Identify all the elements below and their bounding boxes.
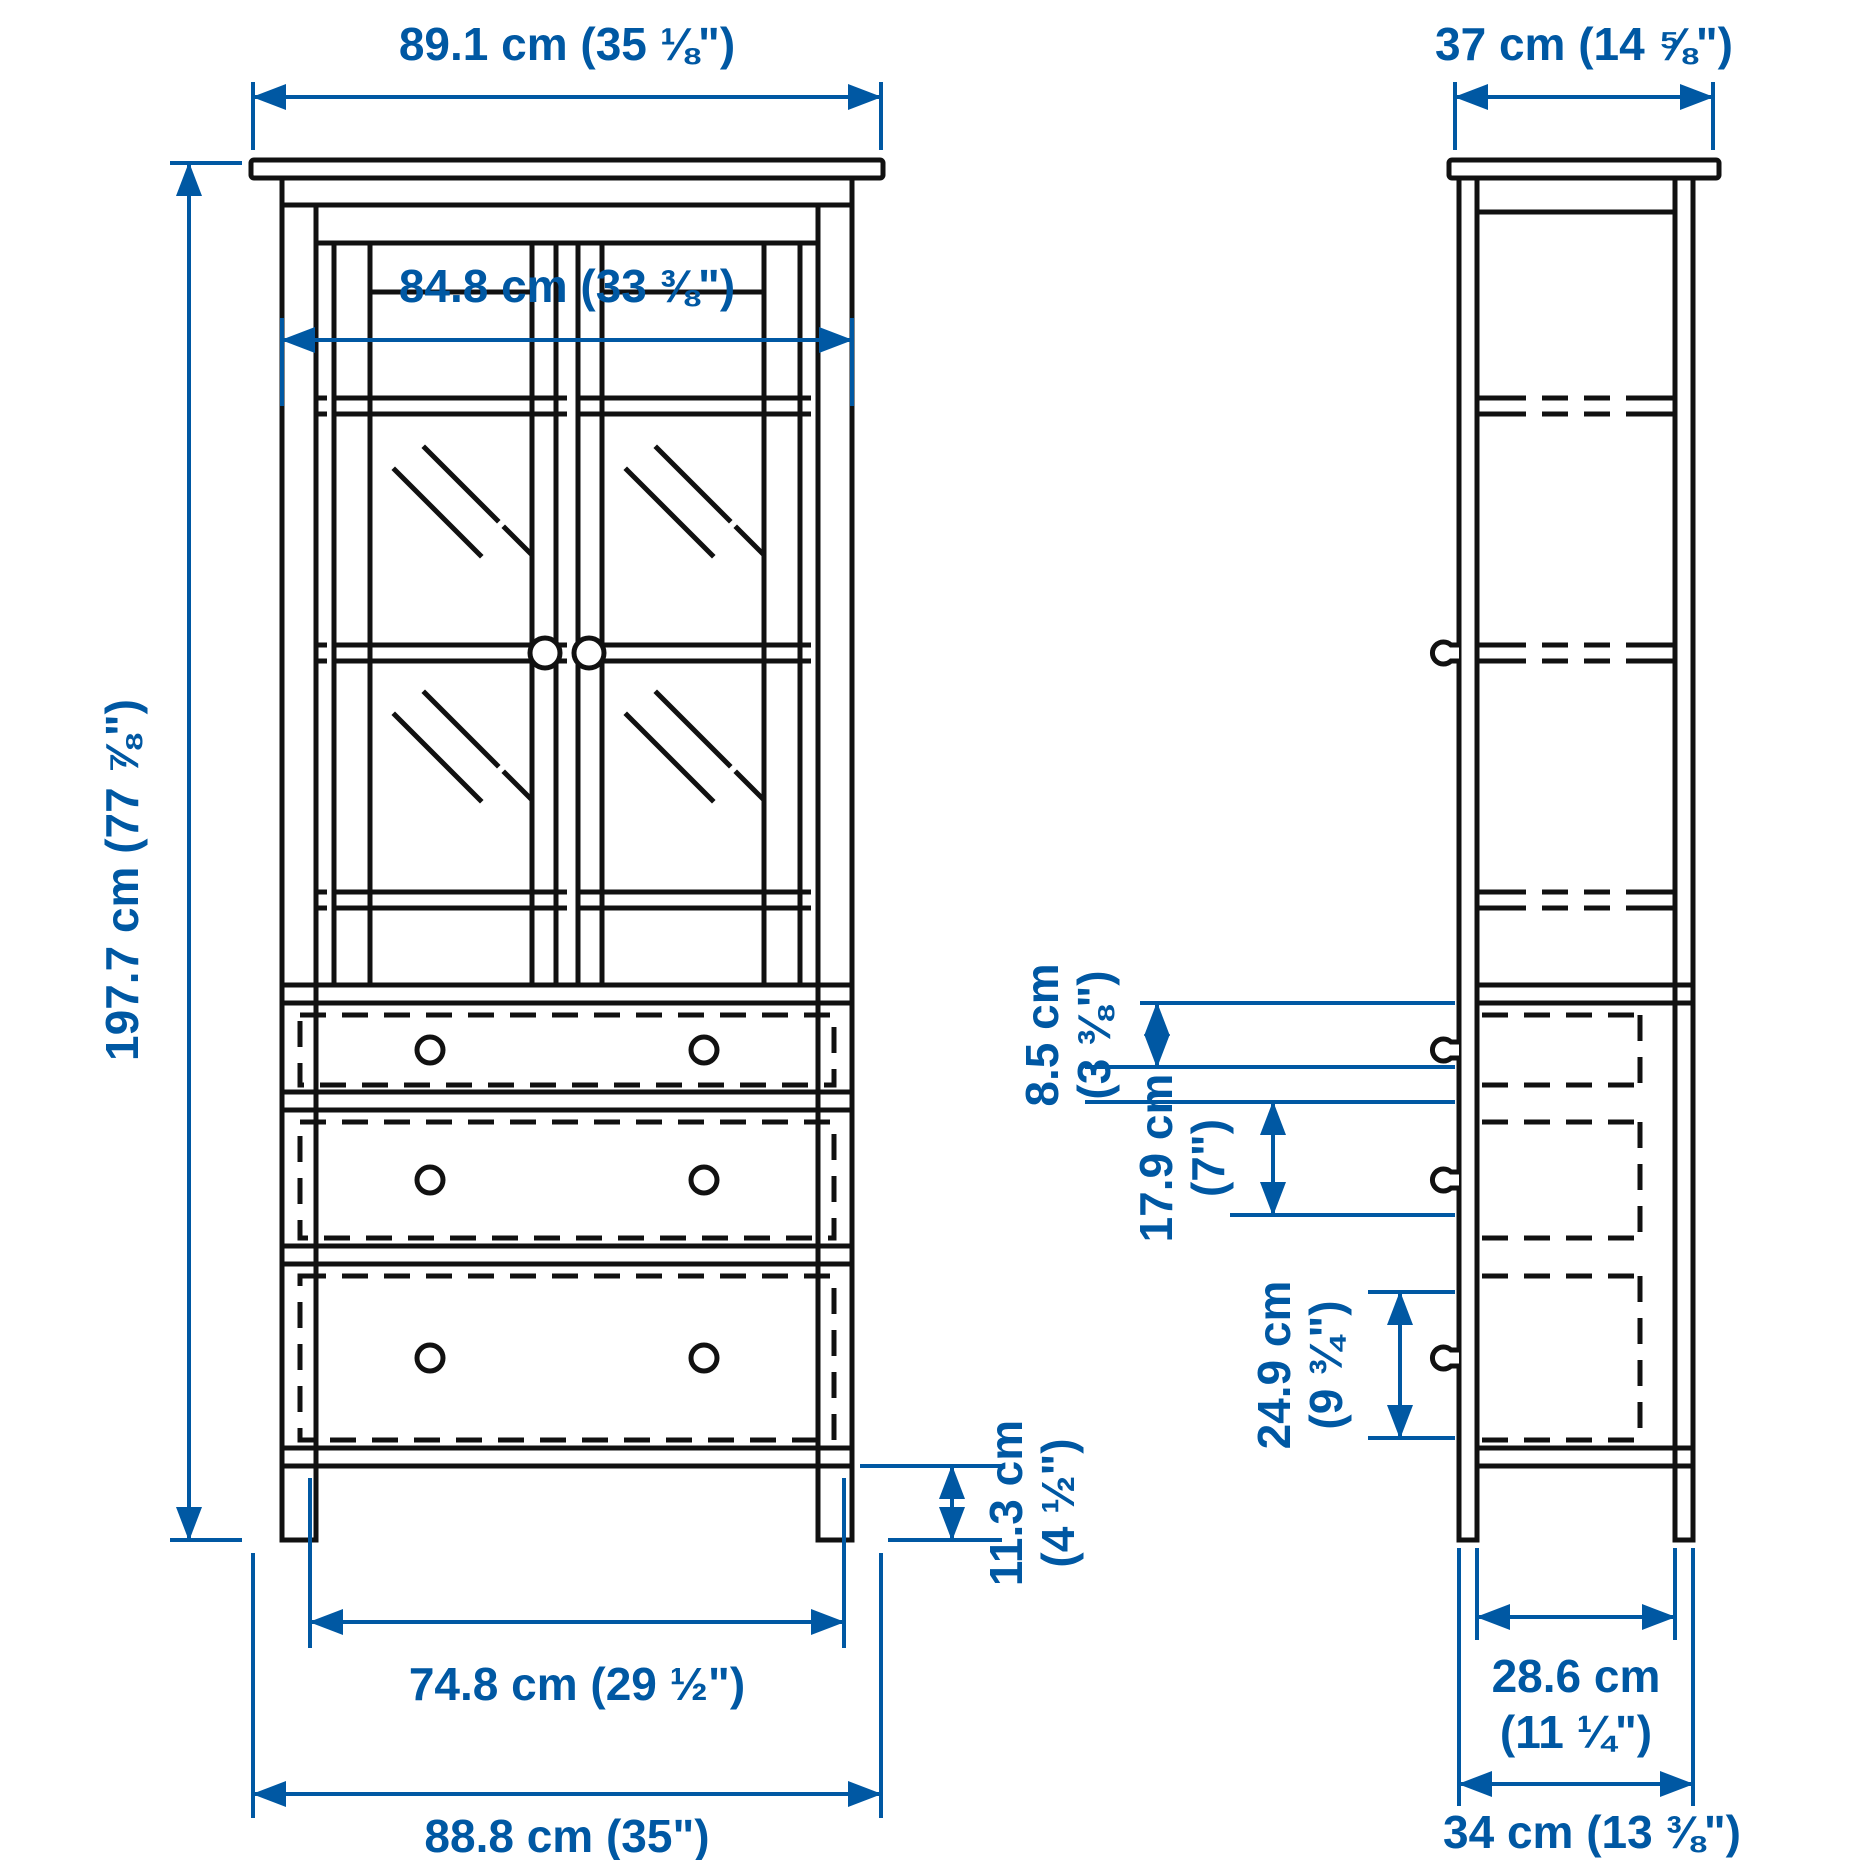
left-door-knob (530, 638, 560, 668)
front-view (251, 160, 883, 1540)
dim-drawer3-height-label-1: 24.9 cm (1248, 1281, 1300, 1450)
dim-base-depth-label: 34 cm (13 ⅜") (1443, 1806, 1741, 1858)
dim-inner-width-label: 84.8 cm (33 ⅜") (399, 260, 735, 312)
dim-drawer-width-label: 74.8 cm (29 ½") (409, 1658, 745, 1710)
dimension-diagram: 89.1 cm (35 ⅛") 84.8 cm (33 ⅜") 197.7 cm… (0, 0, 1860, 1860)
dim-base-depth: 34 cm (13 ⅜") (1443, 1548, 1741, 1858)
dim-drawer-width: 74.8 cm (29 ½") (310, 1478, 844, 1710)
right-door-knob (574, 638, 604, 668)
dim-drawer2-height: 17.9 cm (7") (1085, 1074, 1455, 1243)
drawer-2-front (300, 1122, 834, 1238)
dim-drawer-depth: 28.6 cm (11 ¼") (1477, 1548, 1675, 1758)
dim-drawer3-height-label-2: (9 ¾") (1300, 1300, 1352, 1429)
front-drawers (282, 985, 852, 1540)
dim-base-width-label: 88.8 cm (35") (424, 1810, 709, 1860)
side-drawer1-knob (1432, 1039, 1459, 1061)
dim-drawer1-height-label-2: (3 ⅜") (1068, 970, 1120, 1099)
drawer-1-front (300, 1015, 834, 1085)
dim-depth-top: 37 cm (14 ⅝") (1435, 18, 1733, 150)
dim-height-label: 197.7 cm (77 ⅞") (96, 699, 148, 1061)
side-door-knob (1432, 642, 1459, 664)
front-top-cap (251, 160, 883, 178)
dim-depth-top-label: 37 cm (14 ⅝") (1435, 18, 1733, 70)
dim-drawer1-height: 8.5 cm (3 ⅜") (1016, 963, 1455, 1106)
dim-drawer-depth-label-2: (11 ¼") (1500, 1706, 1652, 1758)
dim-outer-width: 89.1 cm (35 ⅛") (253, 18, 881, 150)
dim-drawer1-height-label-1: 8.5 cm (1016, 963, 1068, 1106)
dim-leg-height-label-1: 11.3 cm (980, 1420, 1032, 1586)
dim-leg-height: 11.3 cm (4 ½") (860, 1420, 1084, 1586)
dim-leg-height-label-2: (4 ½") (1032, 1438, 1084, 1567)
side-drawer2-knob (1432, 1169, 1459, 1191)
side-drawer-section (1477, 985, 1693, 1466)
side-knobs (1432, 642, 1459, 1369)
dim-height: 197.7 cm (77 ⅞") (96, 163, 242, 1540)
dim-drawer2-height-label-2: (7") (1182, 1119, 1234, 1197)
side-frame (1459, 178, 1693, 1540)
side-drawer3-knob (1432, 1347, 1459, 1369)
side-top-cap (1449, 160, 1719, 178)
side-view (1432, 160, 1719, 1540)
dim-outer-width-label: 89.1 cm (35 ⅛") (399, 18, 735, 70)
dim-drawer3-height: 24.9 cm (9 ¾") (1248, 1281, 1455, 1450)
front-glass-doors (316, 243, 818, 985)
drawer-3-front (300, 1276, 834, 1440)
dim-drawer2-height-label-1: 17.9 cm (1130, 1074, 1182, 1243)
side-shelf-lines (1477, 398, 1675, 908)
diagram-canvas: 89.1 cm (35 ⅛") 84.8 cm (33 ⅜") 197.7 cm… (0, 0, 1860, 1860)
dim-drawer-depth-label-1: 28.6 cm (1492, 1650, 1661, 1702)
